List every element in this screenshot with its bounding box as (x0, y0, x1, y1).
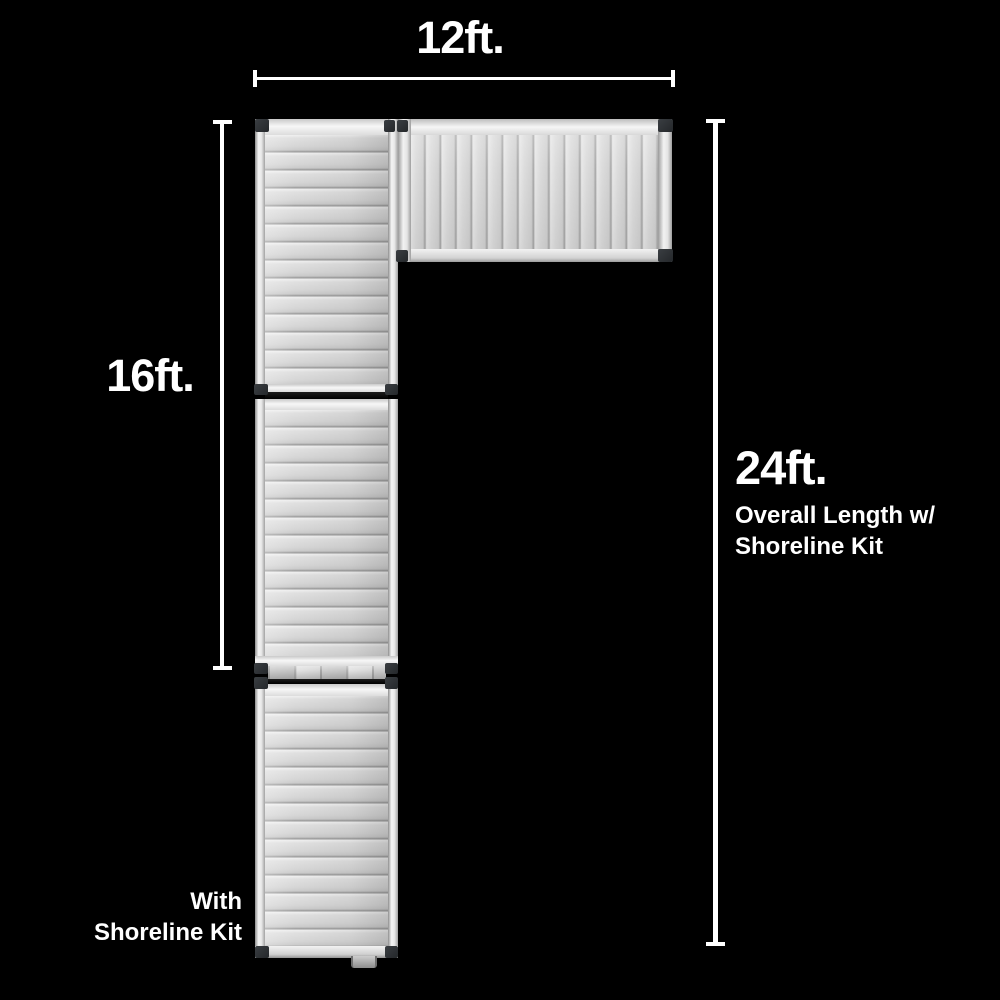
dock-rail (398, 249, 672, 262)
side-dock-section (398, 119, 672, 262)
corner-bracket (255, 119, 269, 132)
corner-bracket (397, 120, 408, 132)
corner-bracket (658, 249, 673, 262)
section-gap (265, 679, 388, 684)
dock-section-middle (255, 399, 398, 666)
dock-rail (255, 119, 398, 135)
dock-rail (255, 656, 398, 666)
dock-rail (255, 384, 398, 392)
dimension-overall-tick-bottom (706, 942, 725, 946)
dimension-dock-length-tick-top (213, 120, 232, 124)
shoreline-kit-annotation: With Shoreline Kit (20, 886, 242, 948)
corner-bracket (254, 663, 268, 674)
dimension-dock-length-tick-bottom (213, 666, 232, 670)
dock-deck-planks (411, 135, 658, 249)
corner-bracket (396, 250, 408, 262)
corner-bracket (255, 946, 269, 958)
dock-rail (255, 684, 398, 696)
corner-bracket (254, 384, 268, 395)
dimension-dock-length-line (220, 122, 224, 668)
dimension-width-label: 12ft. (330, 12, 590, 64)
corner-bracket (385, 384, 398, 395)
dimension-width-tick-right (671, 70, 675, 87)
corner-bracket (385, 946, 398, 958)
shoreline-kit-section (255, 684, 398, 958)
section-gap (265, 392, 388, 399)
dock-rail (255, 399, 265, 666)
dock-section-top (255, 119, 398, 392)
dock-rail (658, 119, 672, 262)
dock-rail (255, 119, 265, 392)
dimension-width-tick-left (253, 70, 257, 87)
dimension-dock-length-label: 16ft. (40, 350, 260, 402)
corner-bracket (658, 119, 673, 132)
dock-rail (398, 119, 672, 135)
dock-rail (398, 119, 411, 262)
dimension-overall-caption-line1: Overall Length w/ (735, 500, 935, 531)
shoreline-kit-annotation-line2: Shoreline Kit (20, 917, 242, 948)
dimension-overall-caption: Overall Length w/ Shoreline Kit (735, 500, 935, 562)
dock-rail (388, 399, 398, 666)
dock-rail (388, 684, 398, 958)
shoreline-kit-annotation-line1: With (20, 886, 242, 917)
end-connector-tab (351, 956, 377, 968)
dimension-overall-caption-line2: Shoreline Kit (735, 531, 935, 562)
dock-deck-planks (265, 696, 388, 946)
hinge-connector (268, 666, 386, 679)
dock-rail (255, 684, 265, 958)
corner-bracket (385, 663, 398, 674)
diagram-canvas: 12ft. 16ft. 24ft. Overall Length w/ Shor… (0, 0, 1000, 1000)
corner-bracket (385, 677, 398, 689)
dock-rail (255, 399, 398, 410)
dimension-overall-label: 24ft. (735, 440, 827, 495)
dimension-width-line (255, 77, 673, 80)
dock-deck-planks (265, 410, 388, 656)
corner-bracket (384, 120, 395, 132)
dock-deck-planks (265, 135, 388, 389)
corner-bracket (254, 677, 268, 689)
dimension-overall-line (713, 121, 718, 944)
dimension-overall-tick-top (706, 119, 725, 123)
